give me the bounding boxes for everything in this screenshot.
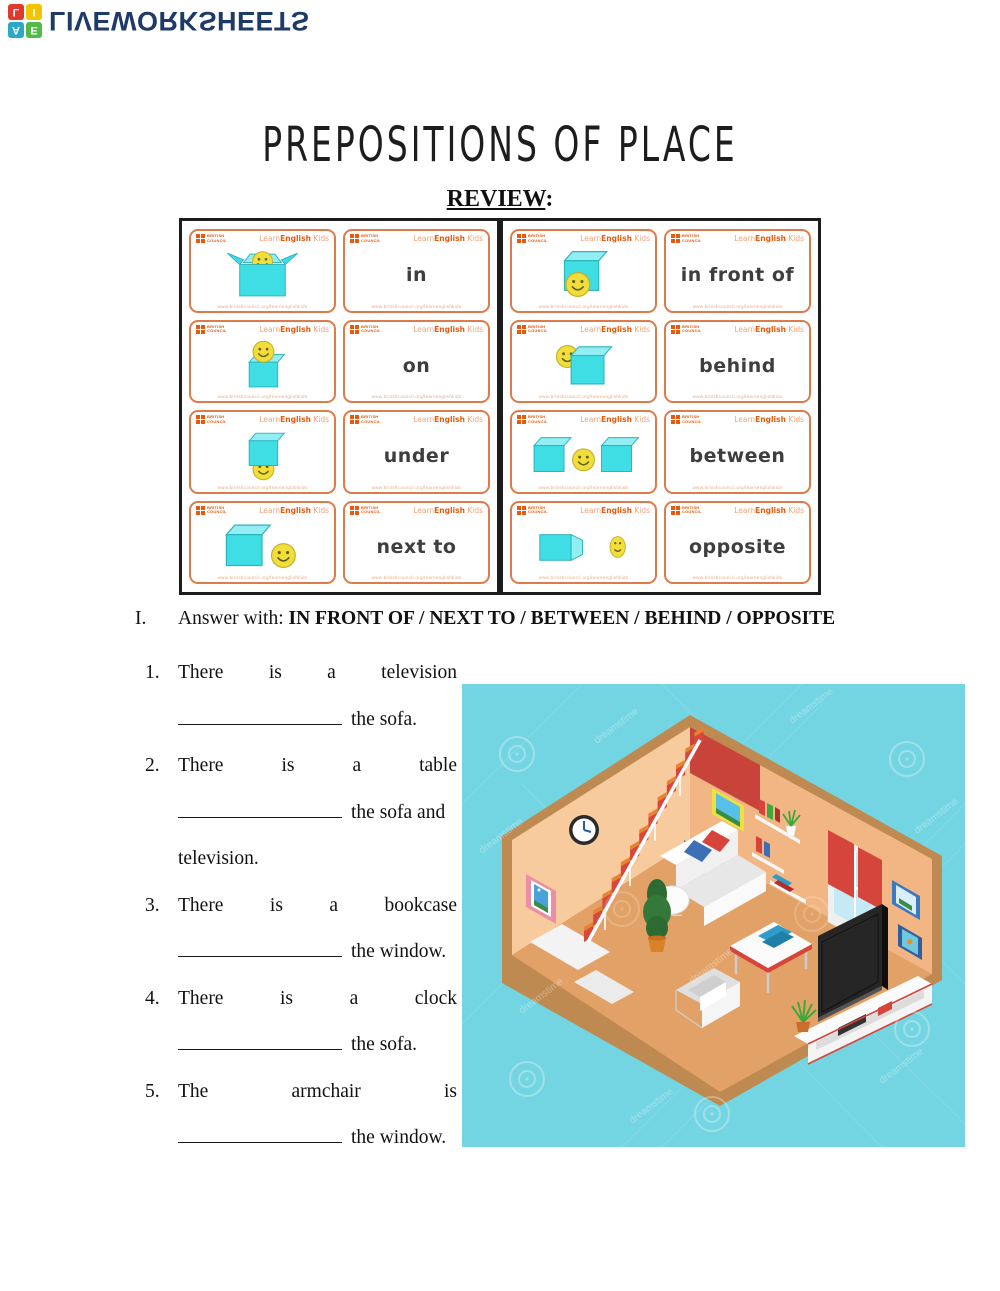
british-council-logo: BRITISHCOUNCIL xyxy=(350,234,381,243)
card-footer-url: www.britishcouncil.org/learnenglishkids xyxy=(350,485,483,490)
question-tail: the sofa and xyxy=(351,802,445,824)
british-council-logo: BRITISHCOUNCIL xyxy=(671,325,702,334)
card-header: BRITISHCOUNCIL LearnEnglish Kids xyxy=(517,234,650,247)
card-word-area: under xyxy=(350,428,483,485)
logo-square-e: E xyxy=(26,22,42,38)
card-image-area xyxy=(517,428,650,485)
question-number: 2. xyxy=(145,755,160,777)
flashcard-image-opposite: BRITISHCOUNCIL LearnEnglish Kids www.bri… xyxy=(510,501,657,585)
card-footer-url: www.britishcouncil.org/learnenglishkids xyxy=(350,575,483,580)
flashcard-word-on: BRITISHCOUNCIL LearnEnglish Kids on www.… xyxy=(343,320,490,404)
card-image-area xyxy=(517,247,650,304)
learnenglish-kids-wordmark: LearnEnglish Kids xyxy=(413,234,483,243)
british-council-logo: BRITISHCOUNCIL xyxy=(350,415,381,424)
flashcard-word-between: BRITISHCOUNCIL LearnEnglish Kids between… xyxy=(664,410,811,494)
flashcard-word-opposite: BRITISHCOUNCIL LearnEnglish Kids opposit… xyxy=(664,501,811,585)
british-council-icon xyxy=(517,415,526,424)
card-footer-url: www.britishcouncil.org/learnenglishkids xyxy=(196,575,329,580)
wall-clock xyxy=(569,815,599,845)
card-header: BRITISHCOUNCIL LearnEnglish Kids xyxy=(517,506,650,519)
review-heading: REVIEW: xyxy=(0,186,1000,213)
preposition-word: in front of xyxy=(681,264,794,286)
question-tail: the window. xyxy=(351,941,446,963)
flashcard-image-next-to: BRITISHCOUNCIL LearnEnglish Kids www.bri… xyxy=(189,501,336,585)
british-council-logo: BRITISHCOUNCIL xyxy=(196,234,227,243)
british-council-icon xyxy=(350,506,359,515)
answer-blank-4[interactable] xyxy=(178,1034,342,1050)
flashcard-image-on: BRITISHCOUNCIL LearnEnglish Kids www.bri… xyxy=(189,320,336,404)
learnenglish-kids-wordmark: LearnEnglish Kids xyxy=(413,506,483,515)
learnenglish-kids-wordmark: LearnEnglish Kids xyxy=(734,506,804,515)
learnenglish-kids-wordmark: LearnEnglish Kids xyxy=(580,325,650,334)
card-footer-url: www.britishcouncil.org/learnenglishkids xyxy=(671,304,804,309)
card-image-area xyxy=(196,428,329,485)
question-tail: the sofa. xyxy=(351,709,417,731)
answer-blank-1[interactable] xyxy=(178,709,342,725)
smiley-next-to-box-image xyxy=(196,522,329,572)
british-council-icon xyxy=(350,325,359,334)
flashcard-grid-left: BRITISHCOUNCIL LearnEnglish Kids www.bri… xyxy=(179,218,500,595)
question-4-line-1: 4. There is a clock xyxy=(145,976,457,1023)
preposition-word: next to xyxy=(376,536,456,558)
answer-blank-5[interactable] xyxy=(178,1127,342,1143)
question-2-line-1: 2. There is a table xyxy=(145,743,457,790)
british-council-logo: BRITISHCOUNCIL xyxy=(350,506,381,515)
card-header: BRITISHCOUNCIL LearnEnglish Kids xyxy=(517,325,650,338)
card-image-area xyxy=(517,519,650,576)
question-1-line-2: the sofa. xyxy=(145,697,457,744)
card-header: BRITISHCOUNCIL LearnEnglish Kids xyxy=(196,325,329,338)
card-word-area: in front of xyxy=(671,247,804,304)
question-text: There is a bookcase xyxy=(178,895,457,917)
card-header: BRITISHCOUNCIL LearnEnglish Kids xyxy=(196,415,329,428)
card-footer-url: www.britishcouncil.org/learnenglishkids xyxy=(671,485,804,490)
question-5-line-2: the window. xyxy=(145,1115,457,1162)
flashcard-word-next-to: BRITISHCOUNCIL LearnEnglish Kids next to… xyxy=(343,501,490,585)
preposition-word: behind xyxy=(699,355,776,377)
question-list: 1. There is a television the sofa. 2. Th… xyxy=(145,650,457,1162)
card-footer-url: www.britishcouncil.org/learnenglishkids xyxy=(517,575,650,580)
review-colon: : xyxy=(545,186,553,212)
british-council-icon xyxy=(517,506,526,515)
learnenglish-kids-wordmark: LearnEnglish Kids xyxy=(580,506,650,515)
card-footer-url: www.britishcouncil.org/learnenglishkids xyxy=(196,304,329,309)
flashcard-word-in: BRITISHCOUNCIL LearnEnglish Kids in www.… xyxy=(343,229,490,313)
card-header: BRITISHCOUNCIL LearnEnglish Kids xyxy=(196,506,329,519)
british-council-icon xyxy=(671,325,680,334)
british-council-icon xyxy=(196,234,205,243)
question-number: 4. xyxy=(145,988,160,1010)
smiley-behind-box-image xyxy=(517,341,650,391)
flashcard-word-in-front-of: BRITISHCOUNCIL LearnEnglish Kids in fron… xyxy=(664,229,811,313)
review-word: REVIEW xyxy=(447,186,546,212)
card-footer-url: www.britishcouncil.org/learnenglishkids xyxy=(350,394,483,399)
british-council-icon xyxy=(671,506,680,515)
question-4-line-2: the sofa. xyxy=(145,1022,457,1069)
learnenglish-kids-wordmark: LearnEnglish Kids xyxy=(259,234,329,243)
learnenglish-kids-wordmark: LearnEnglish Kids xyxy=(580,415,650,424)
question-text: There is a table xyxy=(178,755,457,777)
card-image-area xyxy=(196,247,329,304)
flashcard-word-under: BRITISHCOUNCIL LearnEnglish Kids under w… xyxy=(343,410,490,494)
question-number: 3. xyxy=(145,895,160,917)
learnenglish-kids-wordmark: LearnEnglish Kids xyxy=(413,325,483,334)
british-council-icon xyxy=(196,506,205,515)
british-council-logo: BRITISHCOUNCIL xyxy=(671,234,702,243)
card-word-area: in xyxy=(350,247,483,304)
flashcard-image-in: BRITISHCOUNCIL LearnEnglish Kids www.bri… xyxy=(189,229,336,313)
british-council-logo: BRITISHCOUNCIL xyxy=(517,325,548,334)
learnenglish-kids-wordmark: LearnEnglish Kids xyxy=(259,325,329,334)
smiley-opposite-box-image xyxy=(517,522,650,572)
smiley-between-two-boxes-image xyxy=(517,431,650,481)
card-word-area: behind xyxy=(671,338,804,395)
card-footer-url: www.britishcouncil.org/learnenglishkids xyxy=(517,304,650,309)
preposition-word: opposite xyxy=(689,536,786,558)
question-text: The armchair is xyxy=(178,1081,457,1103)
liveworksheets-wordmark: LIVEWORKSHEETS xyxy=(49,6,310,37)
card-header: BRITISHCOUNCIL LearnEnglish Kids xyxy=(671,415,804,428)
question-5-line-1: 5. The armchair is xyxy=(145,1069,457,1116)
worksheet-page: A E L I LIVEWORKSHEETS PREPOSITIONS OF P… xyxy=(0,0,1000,1291)
card-footer-url: www.britishcouncil.org/learnenglishkids xyxy=(671,394,804,399)
british-council-logo: BRITISHCOUNCIL xyxy=(671,415,702,424)
liveworksheets-logo-icon: A E L I xyxy=(8,4,42,38)
card-image-area xyxy=(196,338,329,395)
smiley-on-top-of-box-image xyxy=(196,341,329,391)
card-header: BRITISHCOUNCIL LearnEnglish Kids xyxy=(517,415,650,428)
flashcard-image-between: BRITISHCOUNCIL LearnEnglish Kids www.bri… xyxy=(510,410,657,494)
british-council-logo: BRITISHCOUNCIL xyxy=(196,506,227,515)
flashcard-image-under: BRITISHCOUNCIL LearnEnglish Kids www.bri… xyxy=(189,410,336,494)
card-word-area: between xyxy=(671,428,804,485)
british-council-icon xyxy=(196,415,205,424)
flashcard-grid: BRITISHCOUNCIL LearnEnglish Kids www.bri… xyxy=(179,218,821,595)
card-header: BRITISHCOUNCIL LearnEnglish Kids xyxy=(196,234,329,247)
preposition-word: under xyxy=(384,445,449,467)
exercise-numeral: I. xyxy=(135,608,146,630)
question-number: 5. xyxy=(145,1081,160,1103)
question-number: 1. xyxy=(145,662,160,684)
question-tail: the window. xyxy=(351,1127,446,1149)
question-text: There is a television xyxy=(178,662,457,684)
british-council-logo: BRITISHCOUNCIL xyxy=(517,506,548,515)
flashcard-grid-right: BRITISHCOUNCIL LearnEnglish Kids www.bri… xyxy=(500,218,821,595)
learnenglish-kids-wordmark: LearnEnglish Kids xyxy=(259,415,329,424)
card-footer-url: www.britishcouncil.org/learnenglishkids xyxy=(196,485,329,490)
preposition-word: between xyxy=(690,445,786,467)
learnenglish-kids-wordmark: LearnEnglish Kids xyxy=(580,234,650,243)
question-3-line-2: the window. xyxy=(145,929,457,976)
card-header: BRITISHCOUNCIL LearnEnglish Kids xyxy=(671,234,804,247)
question-3-line-1: 3. There is a bookcase xyxy=(145,883,457,930)
liveworksheets-logo: A E L I LIVEWORKSHEETS xyxy=(8,4,310,38)
question-2-line-3: television. xyxy=(145,836,457,883)
card-footer-url: www.britishcouncil.org/learnenglishkids xyxy=(517,394,650,399)
card-word-area: on xyxy=(350,338,483,395)
question-text: television. xyxy=(178,848,259,870)
card-word-area: opposite xyxy=(671,519,804,576)
card-header: BRITISHCOUNCIL LearnEnglish Kids xyxy=(671,325,804,338)
logo-square-i: I xyxy=(26,4,42,20)
flashcard-image-behind: BRITISHCOUNCIL LearnEnglish Kids www.bri… xyxy=(510,320,657,404)
card-footer-url: www.britishcouncil.org/learnenglishkids xyxy=(671,575,804,580)
learnenglish-kids-wordmark: LearnEnglish Kids xyxy=(413,415,483,424)
card-footer-url: www.britishcouncil.org/learnenglishkids xyxy=(517,485,650,490)
card-footer-url: www.britishcouncil.org/learnenglishkids xyxy=(196,394,329,399)
answer-blank-3[interactable] xyxy=(178,941,342,957)
card-header: BRITISHCOUNCIL LearnEnglish Kids xyxy=(350,325,483,338)
british-council-logo: BRITISHCOUNCIL xyxy=(517,234,548,243)
card-header: BRITISHCOUNCIL LearnEnglish Kids xyxy=(350,234,483,247)
british-council-logo: BRITISHCOUNCIL xyxy=(517,415,548,424)
smiley-under-box-image xyxy=(196,431,329,481)
question-tail: the sofa. xyxy=(351,1034,417,1056)
learnenglish-kids-wordmark: LearnEnglish Kids xyxy=(734,234,804,243)
smiley-inside-open-box-image xyxy=(196,250,329,300)
british-council-icon xyxy=(350,234,359,243)
logo-square-a: A xyxy=(8,22,24,38)
answer-blank-2[interactable] xyxy=(178,802,342,818)
logo-square-l: L xyxy=(8,4,24,20)
living-room-illustration: dreamstime dreamstime dreamstime dreamst… xyxy=(462,684,965,1147)
flashcard-image-in-front-of: BRITISHCOUNCIL LearnEnglish Kids www.bri… xyxy=(510,229,657,313)
british-council-icon xyxy=(350,415,359,424)
card-image-area xyxy=(196,519,329,576)
question-2-line-2: the sofa and xyxy=(145,790,457,837)
british-council-logo: BRITISHCOUNCIL xyxy=(196,415,227,424)
preposition-word: on xyxy=(403,355,431,377)
page-title: PREPOSITIONS OF PLACE xyxy=(0,116,1000,173)
card-word-area: next to xyxy=(350,519,483,576)
british-council-icon xyxy=(517,234,526,243)
preposition-word: in xyxy=(406,264,427,286)
british-council-icon xyxy=(671,415,680,424)
british-council-logo: BRITISHCOUNCIL xyxy=(671,506,702,515)
learnenglish-kids-wordmark: LearnEnglish Kids xyxy=(734,325,804,334)
british-council-icon xyxy=(517,325,526,334)
card-image-area xyxy=(517,338,650,395)
british-council-logo: BRITISHCOUNCIL xyxy=(196,325,227,334)
british-council-icon xyxy=(671,234,680,243)
question-text: There is a clock xyxy=(178,988,457,1010)
flashcard-word-behind: BRITISHCOUNCIL LearnEnglish Kids behind … xyxy=(664,320,811,404)
card-footer-url: www.britishcouncil.org/learnenglishkids xyxy=(350,304,483,309)
smiley-in-front-of-box-image xyxy=(517,250,650,300)
question-1-line-1: 1. There is a television xyxy=(145,650,457,697)
british-council-logo: BRITISHCOUNCIL xyxy=(350,325,381,334)
exercise-instructions: Answer with: IN FRONT OF / NEXT TO / BET… xyxy=(178,608,835,630)
card-header: BRITISHCOUNCIL LearnEnglish Kids xyxy=(350,415,483,428)
card-header: BRITISHCOUNCIL LearnEnglish Kids xyxy=(671,506,804,519)
learnenglish-kids-wordmark: LearnEnglish Kids xyxy=(259,506,329,515)
learnenglish-kids-wordmark: LearnEnglish Kids xyxy=(734,415,804,424)
card-header: BRITISHCOUNCIL LearnEnglish Kids xyxy=(350,506,483,519)
british-council-icon xyxy=(196,325,205,334)
